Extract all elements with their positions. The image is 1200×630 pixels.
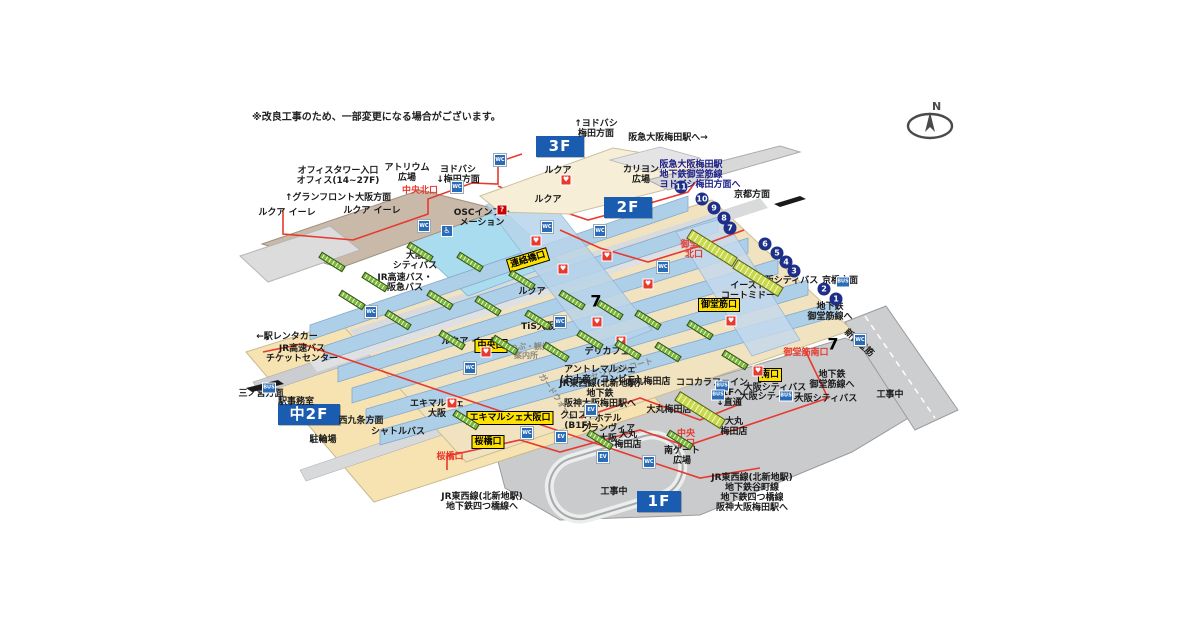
platform-number-1: 1 (830, 293, 843, 306)
station-map-page: { "meta": { "title": "JR大阪駅 構内図(立体)", "n… (0, 0, 1200, 630)
compass-n-label: N (932, 100, 941, 113)
aed-icon: ♥ (753, 366, 764, 377)
floor-badge-1f: 1F (637, 491, 681, 512)
restroom-icon: WC (657, 261, 669, 273)
wheelchair-icon: ♿ (441, 225, 453, 237)
construction-note: ※改良工事のため、一部変更になる場合がございます。 (252, 108, 501, 123)
aed-icon: ♥ (602, 251, 613, 262)
elevator-icon: EV (585, 404, 597, 416)
restroom-icon: WC (541, 221, 553, 233)
restroom-icon: WC (643, 456, 655, 468)
platform-number-10: 10 (696, 193, 709, 206)
aed-icon: ♥ (726, 316, 737, 327)
aed-icon: ♥ (531, 236, 542, 247)
restroom-icon: WC (554, 316, 566, 328)
elevator-icon: EV (597, 451, 609, 463)
platform-number-2: 2 (818, 283, 831, 296)
bus-icon: BUS (836, 277, 850, 288)
aed-icon: ♥ (558, 264, 569, 275)
aed-icon: ♥ (561, 175, 572, 186)
aed-icon: ♥ (643, 279, 654, 290)
info-icon: ? (497, 205, 508, 216)
restroom-icon: WC (854, 334, 866, 346)
compass-north-icon: N (902, 102, 958, 148)
floor-badge-3f: 3F (536, 136, 584, 157)
restroom-icon: WC (418, 220, 430, 232)
restroom-icon: WC (494, 154, 506, 166)
platform-number-11: 11 (675, 181, 688, 194)
floor-badge-naka2f: 中2F (278, 404, 340, 425)
restroom-icon: WC (594, 225, 606, 237)
restroom-icon: WC (365, 306, 377, 318)
floor-badge-2f: 2F (604, 197, 652, 218)
aed-icon: ♥ (447, 398, 458, 409)
seven-eleven-icon: 7 (827, 335, 838, 354)
bus-icon: BUS (711, 390, 725, 401)
bus-icon: BUS (262, 383, 276, 394)
platform-number-7: 7 (724, 222, 737, 235)
platform-number-6: 6 (759, 238, 772, 251)
station-isometric-artwork (0, 0, 1200, 630)
restroom-icon: WC (521, 427, 533, 439)
restroom-icon: WC (451, 181, 463, 193)
elevator-icon: EV (555, 431, 567, 443)
restroom-icon: WC (464, 362, 476, 374)
aed-icon: ♥ (481, 347, 492, 358)
bus-icon: BUS (779, 391, 793, 402)
aed-icon: ♥ (592, 317, 603, 328)
platform-number-3: 3 (788, 265, 801, 278)
